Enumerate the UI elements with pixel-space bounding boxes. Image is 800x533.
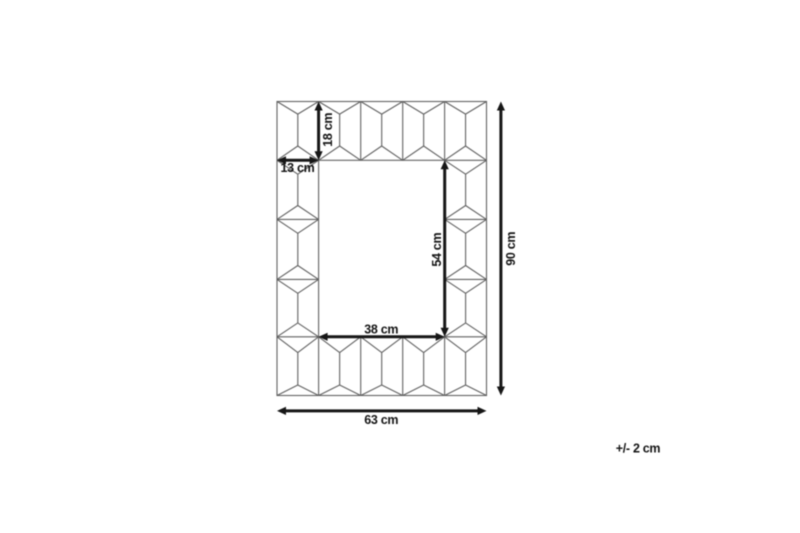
svg-text:54 cm: 54 cm [430,233,444,267]
svg-text:63 cm: 63 cm [364,413,398,427]
svg-text:18 cm: 18 cm [321,113,335,147]
svg-text:13 cm: 13 cm [281,161,315,175]
svg-text:+/- 2 cm: +/- 2 cm [616,442,661,456]
svg-text:90 cm: 90 cm [504,232,518,266]
svg-text:38 cm: 38 cm [364,323,398,337]
